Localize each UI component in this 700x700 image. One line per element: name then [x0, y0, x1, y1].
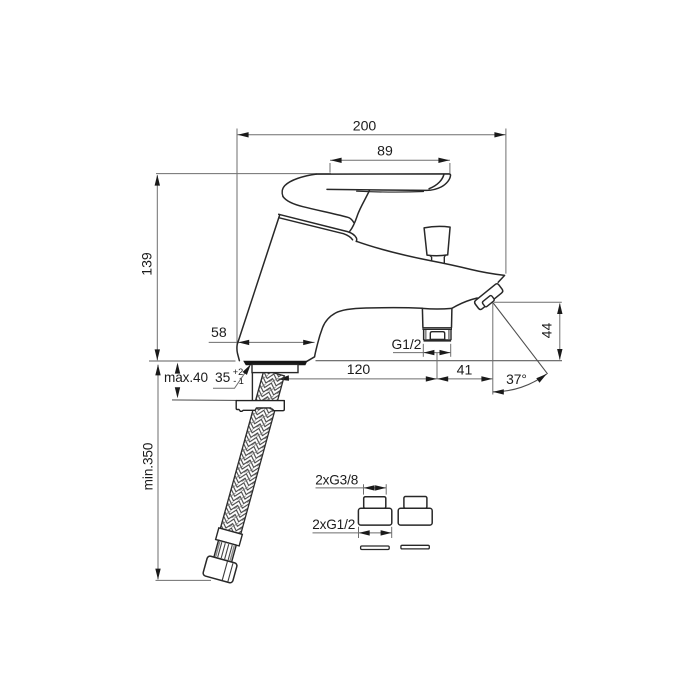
svg-text:max.40: max.40: [164, 370, 209, 385]
svg-text:58: 58: [211, 324, 227, 340]
svg-text:min.350: min.350: [140, 442, 155, 490]
svg-text:120: 120: [347, 361, 371, 377]
svg-text:G1/2: G1/2: [392, 337, 422, 352]
svg-text:41: 41: [457, 361, 473, 377]
svg-text:2xG3/8: 2xG3/8: [315, 473, 358, 488]
svg-text:35: 35: [215, 370, 231, 385]
svg-text:139: 139: [139, 252, 155, 276]
svg-text:2xG1/2: 2xG1/2: [312, 517, 355, 532]
svg-text:200: 200: [353, 118, 377, 134]
svg-text:44: 44: [539, 323, 555, 339]
svg-text:- 1: - 1: [233, 376, 244, 386]
svg-text:89: 89: [377, 143, 393, 159]
svg-text:37°: 37°: [506, 372, 527, 387]
